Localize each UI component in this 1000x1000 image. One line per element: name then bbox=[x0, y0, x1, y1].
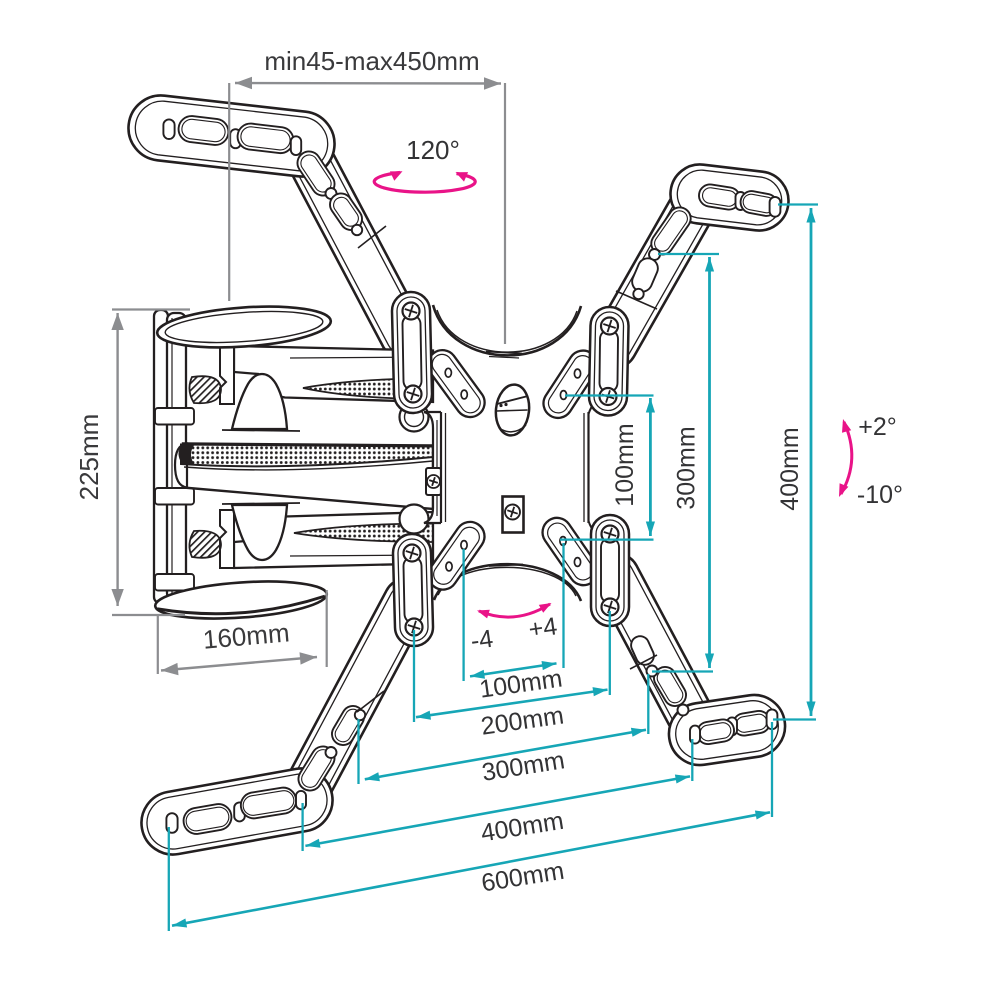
svg-text:100mm: 100mm bbox=[611, 423, 639, 506]
svg-text:400mm: 400mm bbox=[776, 427, 804, 510]
svg-text:-10°: -10° bbox=[857, 481, 903, 509]
svg-text:+2°: +2° bbox=[858, 413, 897, 441]
svg-text:-4: -4 bbox=[469, 625, 495, 656]
svg-text:120°: 120° bbox=[406, 135, 460, 165]
svg-text:225mm: 225mm bbox=[74, 414, 104, 501]
svg-text:600mm: 600mm bbox=[479, 857, 566, 898]
svg-text:160mm: 160mm bbox=[202, 617, 291, 654]
svg-text:300mm: 300mm bbox=[673, 426, 701, 509]
svg-text:300mm: 300mm bbox=[480, 746, 567, 787]
svg-text:min45-max450mm: min45-max450mm bbox=[264, 46, 479, 76]
svg-text:+4: +4 bbox=[527, 612, 559, 644]
